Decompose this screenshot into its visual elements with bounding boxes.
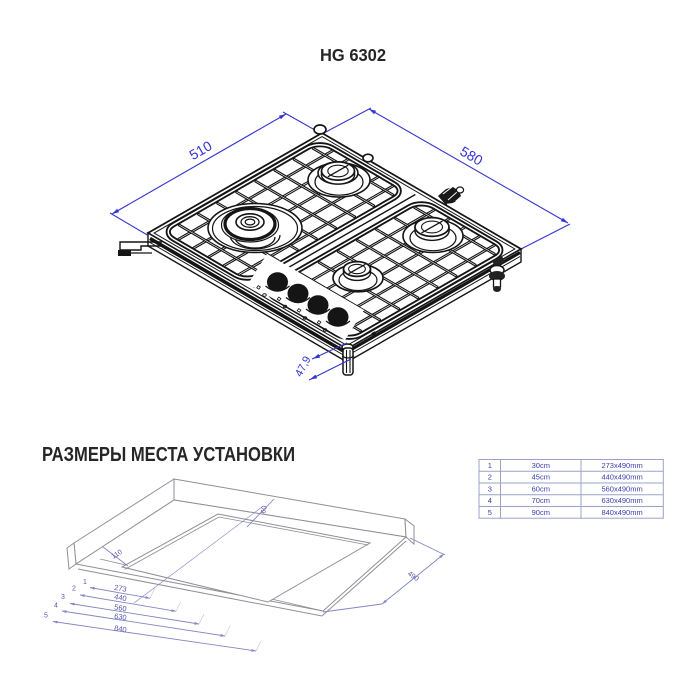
svg-text:4: 4 xyxy=(54,603,58,610)
svg-text:2: 2 xyxy=(72,586,76,593)
svg-text:2: 2 xyxy=(488,473,492,482)
svg-text:1: 1 xyxy=(488,461,492,470)
svg-text:70cm: 70cm xyxy=(532,496,550,505)
svg-text:440x490mm: 440x490mm xyxy=(601,473,642,482)
svg-text:630x490mm: 630x490mm xyxy=(601,496,642,505)
svg-text:60cm: 60cm xyxy=(532,485,550,494)
svg-text:1: 1 xyxy=(83,579,87,586)
svg-text:РАЗМЕРЫ МЕСТА УСТАНОВКИ: РАЗМЕРЫ МЕСТА УСТАНОВКИ xyxy=(42,444,295,466)
svg-text:560x490mm: 560x490mm xyxy=(601,485,642,494)
svg-text:30cm: 30cm xyxy=(532,461,550,470)
svg-text:HG 6302: HG 6302 xyxy=(320,45,386,65)
svg-text:45cm: 45cm xyxy=(532,473,550,482)
svg-text:840x490mm: 840x490mm xyxy=(601,508,642,517)
svg-text:3: 3 xyxy=(61,594,65,601)
svg-text:60: 60 xyxy=(260,505,268,514)
svg-text:90cm: 90cm xyxy=(532,508,550,517)
svg-text:273x490mm: 273x490mm xyxy=(601,461,642,470)
svg-text:3: 3 xyxy=(488,485,492,494)
svg-text:5: 5 xyxy=(488,508,492,517)
svg-text:4: 4 xyxy=(488,496,492,505)
svg-text:5: 5 xyxy=(44,613,48,620)
